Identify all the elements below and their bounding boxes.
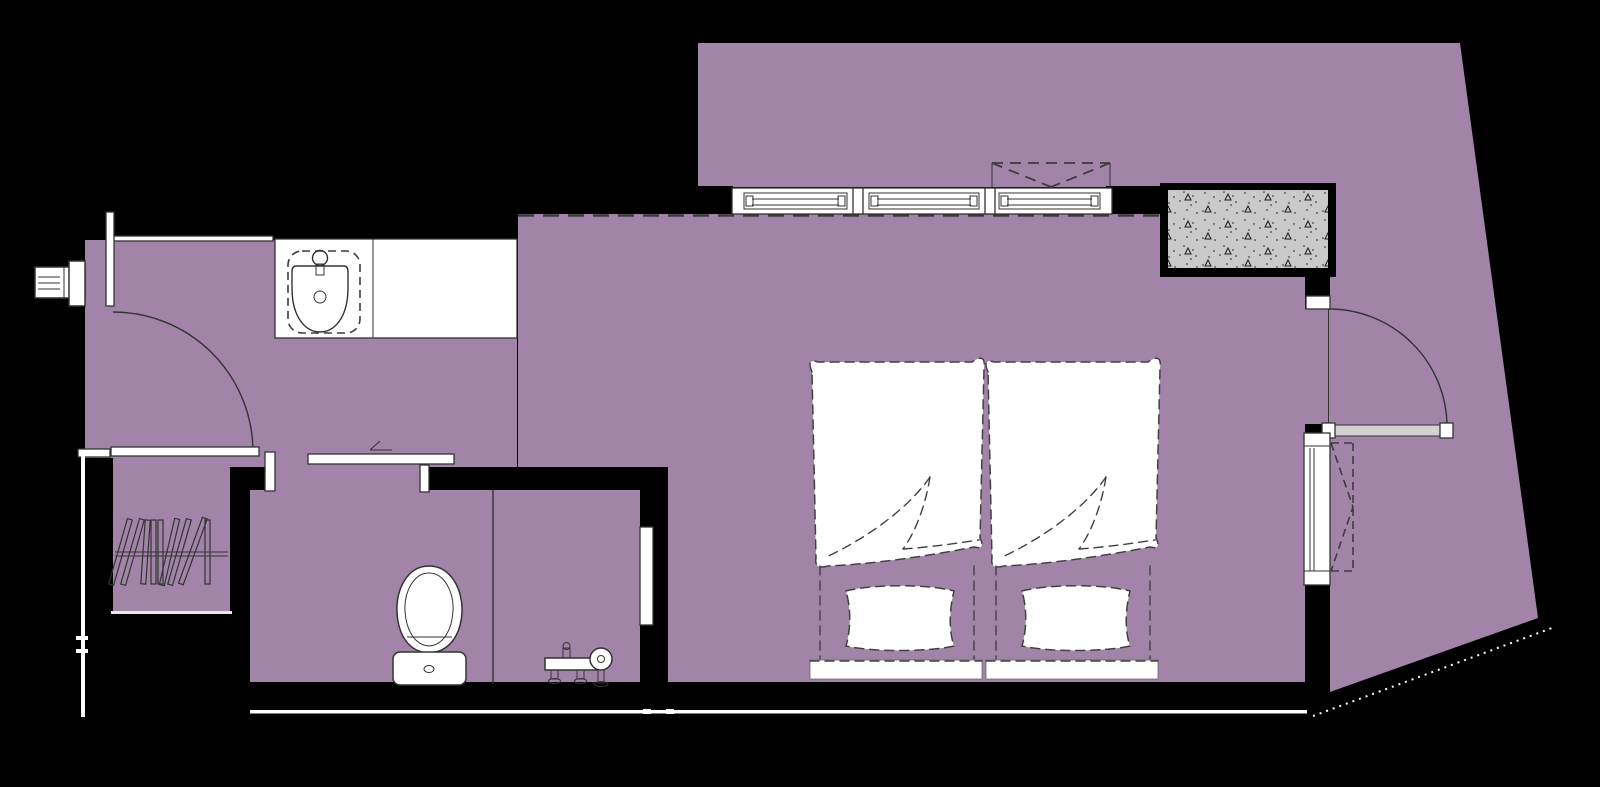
sliding-door-jamb-left <box>265 452 275 491</box>
washbasin-counter <box>275 239 517 338</box>
entry-north-wall-line <box>113 236 273 241</box>
wall-bath-north-right <box>429 467 643 490</box>
toilet-tank <box>393 652 466 685</box>
room-door-jamb <box>1306 296 1330 309</box>
window-band <box>732 188 1112 214</box>
sliding-door-leaf <box>308 454 454 464</box>
concrete-shaft-hatch <box>1168 190 1328 268</box>
wall-window-left-pier <box>697 186 733 214</box>
wall-window-right-pier <box>1106 186 1162 214</box>
wall-vent-panel <box>35 261 85 306</box>
sliding-door-jamb-right <box>420 465 429 492</box>
wall-right-door-pier <box>1305 275 1330 297</box>
window-mullion <box>853 188 863 214</box>
west-wall-line <box>81 454 85 717</box>
toilet <box>393 566 466 685</box>
wall-right-south-pier <box>1305 585 1330 705</box>
door-leaf-block-tip <box>1440 423 1453 438</box>
concrete-shaft <box>1160 183 1336 277</box>
wall-bath-west <box>230 467 250 685</box>
room-door-leaf <box>1322 425 1452 436</box>
floor-room-door-opening <box>1305 309 1330 424</box>
floor-plan-canvas <box>0 0 1600 787</box>
floor-bath-doorway <box>266 464 429 490</box>
shower-screen-glass <box>640 527 653 625</box>
handshower-head <box>590 648 612 670</box>
floor-plan-drawing <box>0 0 1600 787</box>
vanity-counter <box>275 239 517 338</box>
wall-top-left-of-window <box>620 150 698 214</box>
entry-door-jamb <box>106 212 114 306</box>
casement-frame <box>1304 433 1330 585</box>
window-mullion <box>985 188 995 214</box>
wall-south <box>230 682 1307 714</box>
closet-south-line <box>111 611 232 614</box>
floor-closet <box>113 465 230 612</box>
south-facade-line <box>250 710 1307 714</box>
window-frame <box>732 188 1112 214</box>
entry-door-leaf <box>111 447 259 456</box>
